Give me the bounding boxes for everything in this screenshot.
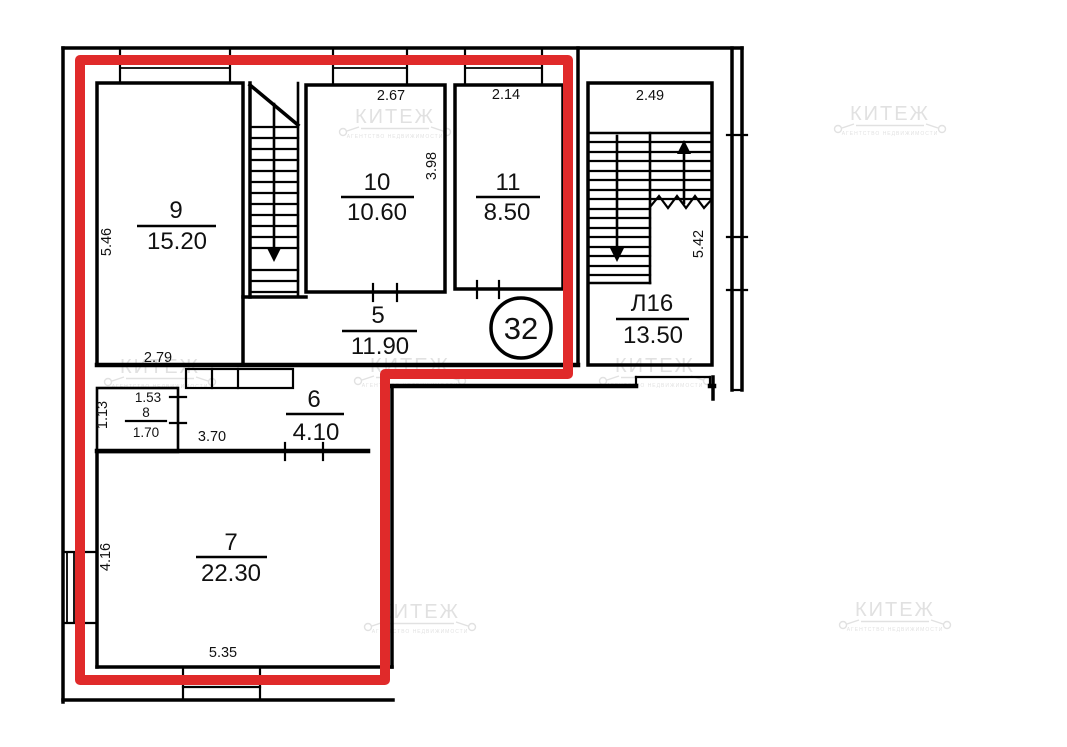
window-top-room11 xyxy=(465,48,542,85)
room-5-area: 11.90 xyxy=(351,333,409,360)
window-top-room10 xyxy=(333,48,407,85)
room-8-area: 1.70 xyxy=(133,425,159,440)
room-6-number: 6 xyxy=(307,386,320,413)
stairwell-treads-left xyxy=(588,142,650,283)
room-9-area: 15.20 xyxy=(147,228,207,255)
room-7-number: 7 xyxy=(224,529,237,556)
room-10-area: 10.60 xyxy=(347,199,407,226)
floor-plan: КИТЕЖ АГЕНТСТВО НЕДВИЖИМОСТИ xyxy=(0,0,1067,747)
room-9-number: 9 xyxy=(169,197,182,224)
room8-width-dim: 1.53 xyxy=(135,390,161,405)
apartment-staircase xyxy=(250,85,298,292)
stairwell-interior xyxy=(588,133,712,283)
window-top-room9 xyxy=(120,48,230,83)
room-6-area: 4.10 xyxy=(293,419,340,446)
apartment-number-badge: 32 xyxy=(491,298,551,358)
room6-width-dim: 3.70 xyxy=(198,429,226,445)
room9-height-dim: 5.46 xyxy=(99,228,115,256)
room-9-walls xyxy=(97,83,243,365)
floor-plan-page: КИТЕЖ АГЕНТСТВО НЕДВИЖИМОСТИ xyxy=(0,0,1067,747)
apartment-number: 32 xyxy=(504,311,538,346)
room-7-area: 22.30 xyxy=(201,560,261,587)
room7-height-dim: 4.16 xyxy=(98,543,114,571)
room10-height-dim: 3.98 xyxy=(424,152,440,180)
room10-width-dim: 2.67 xyxy=(377,88,405,104)
stairwell-width-dim: 2.49 xyxy=(636,88,664,104)
stairwell-height-dim: 5.42 xyxy=(691,230,707,258)
room-10-number: 10 xyxy=(364,169,391,196)
room8-height-dim: 1.13 xyxy=(95,401,111,429)
room9-width-dim: 2.79 xyxy=(144,350,172,366)
stairwell-area: 13.50 xyxy=(623,322,683,349)
room-11-area: 8.50 xyxy=(484,199,531,226)
stairwell-number: Л16 xyxy=(631,290,673,317)
room-11-number: 11 xyxy=(496,169,521,196)
room11-width-dim: 2.14 xyxy=(492,87,520,103)
stair-break-zigzag xyxy=(650,196,712,208)
room-8-number: 8 xyxy=(142,405,150,420)
room7-width-dim: 5.35 xyxy=(209,645,237,661)
room-5-number: 5 xyxy=(371,302,384,329)
